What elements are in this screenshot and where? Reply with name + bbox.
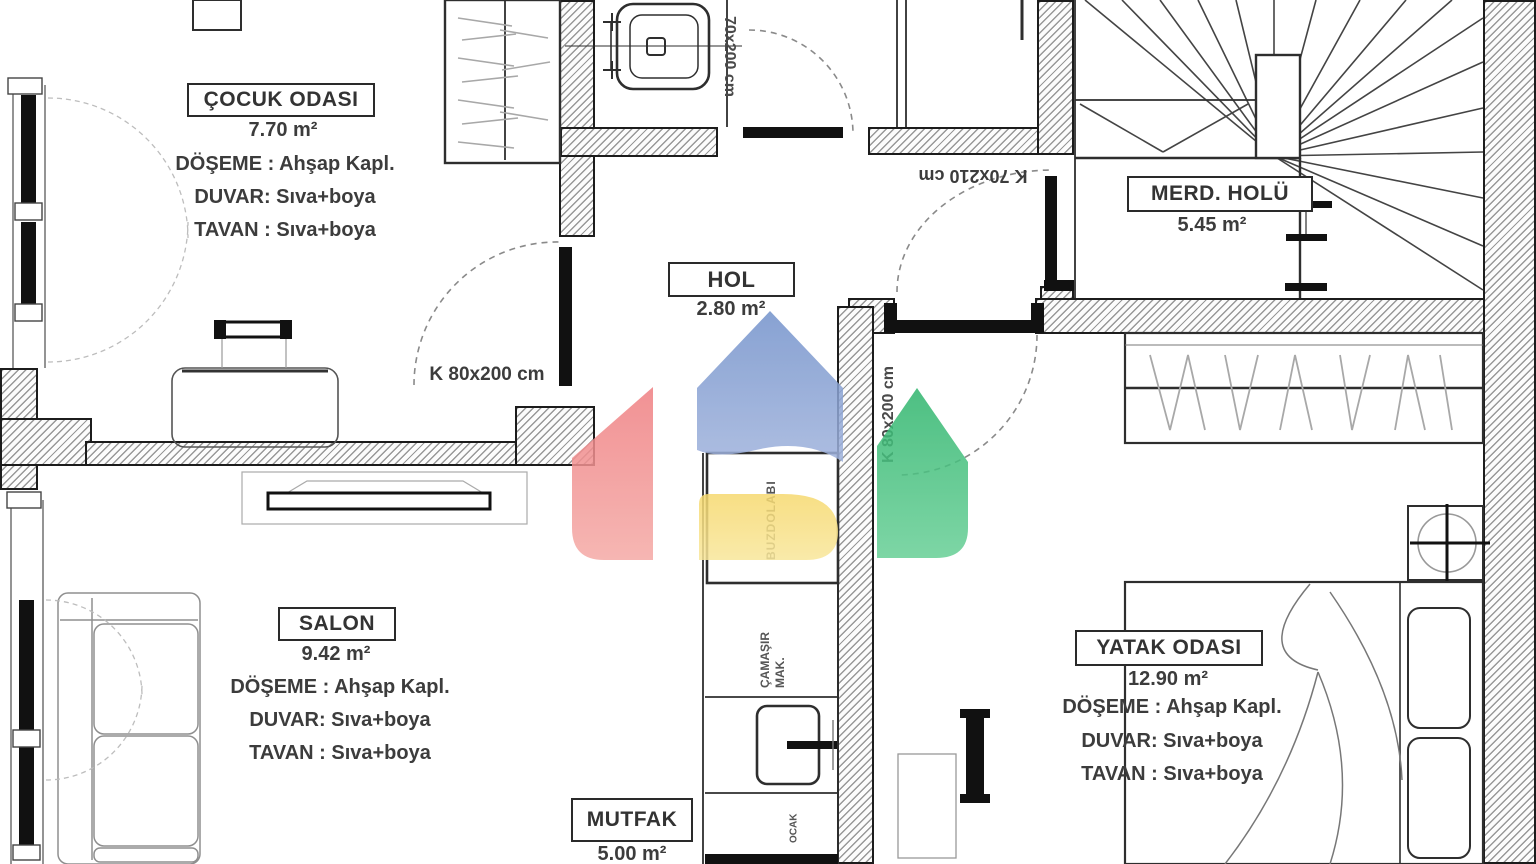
fridge-label: BUZDOLABI <box>757 462 785 578</box>
room-spec-wall-salon: DUVAR: Sıva+boya <box>249 709 430 732</box>
room-spec-ceiling-cocuk: TAVAN : Sıva+boya <box>194 219 376 242</box>
sofa <box>58 593 200 864</box>
room-title-salon: SALON <box>278 607 396 641</box>
logo-blue-shape <box>697 311 843 462</box>
tv-console <box>242 472 527 524</box>
room-spec-floor-salon: DÖŞEME : Ahşap Kapl. <box>230 676 449 699</box>
room-title-hol: HOL <box>668 262 795 297</box>
wall-bath-bottom <box>560 127 718 157</box>
room-area-merd-holu: 5.45 m² <box>1178 214 1247 237</box>
cocuk-shelf <box>193 0 241 30</box>
room-title-yatak-odasi: YATAK ODASI <box>1075 630 1263 666</box>
room-area-yatak-odasi: 12.90 m² <box>1128 668 1208 691</box>
room-spec-wall-yatak: DUVAR: Sıva+boya <box>1081 730 1262 753</box>
tv <box>268 493 490 509</box>
door-label-yatak: K 80x200 cm <box>874 336 904 494</box>
room-title-merd-holu: MERD. HOLÜ <box>1127 176 1313 212</box>
washer-label: ÇAMAŞIR MAK. <box>750 600 796 688</box>
room-area-hol: 2.80 m² <box>697 298 766 321</box>
room-spec-floor-cocuk: DÖŞEME : Ahşap Kapl. <box>175 153 394 176</box>
watermark-logo <box>0 0 1536 864</box>
stove-label: OCAK <box>783 802 805 854</box>
wall-left-step <box>0 418 92 466</box>
room-title-mutfak: MUTFAK <box>571 798 693 842</box>
wall-cocuk-bottom <box>85 441 563 466</box>
room-area-salon: 9.42 m² <box>302 643 371 666</box>
room-area-mutfak: 5.00 m² <box>598 843 667 864</box>
door-label-banyo: 70x200 cm <box>716 0 742 112</box>
room-spec-ceiling-yatak: TAVAN : Sıva+boya <box>1081 763 1263 786</box>
wall-kitchen-bedroom <box>837 306 874 864</box>
bed <box>1125 582 1483 864</box>
stairs <box>1080 0 1483 290</box>
room-spec-wall-cocuk: DUVAR: Sıva+boya <box>194 186 375 209</box>
wall-top-vertical <box>1037 0 1074 155</box>
wall-bedroom-top-right <box>1035 298 1485 334</box>
room-spec-ceiling-salon: TAVAN : Sıva+boya <box>249 742 431 765</box>
wall-bath-left <box>559 0 595 237</box>
wall-right-outer <box>1483 0 1536 864</box>
floor-plan: ÇOCUK ODASI 7.70 m² DÖŞEME : Ahşap Kapl.… <box>0 0 1536 864</box>
room-area-cocuk-odasi: 7.70 m² <box>249 119 318 142</box>
cocuk-wardrobe <box>445 0 560 163</box>
plan-linework <box>0 0 1536 864</box>
bedroom-unit <box>1408 504 1490 582</box>
room-spec-floor-yatak: DÖŞEME : Ahşap Kapl. <box>1062 696 1281 719</box>
door-label-vestibul: K 70x210 cm <box>890 158 1056 186</box>
door-label-cocuk: K 80x200 cm <box>429 364 544 386</box>
bedroom-side-table <box>898 709 990 858</box>
cocuk-bed <box>172 320 338 447</box>
room-title-cocuk-odasi: ÇOCUK ODASI <box>187 83 375 117</box>
wall-corner-block <box>515 406 595 466</box>
bedroom-wardrobe <box>1125 333 1483 443</box>
